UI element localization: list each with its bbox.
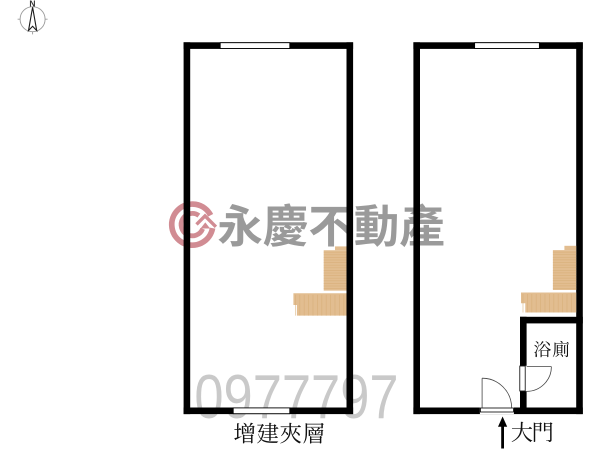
svg-text:0977797: 0977797	[194, 363, 398, 432]
svg-text:N: N	[29, 0, 35, 9]
